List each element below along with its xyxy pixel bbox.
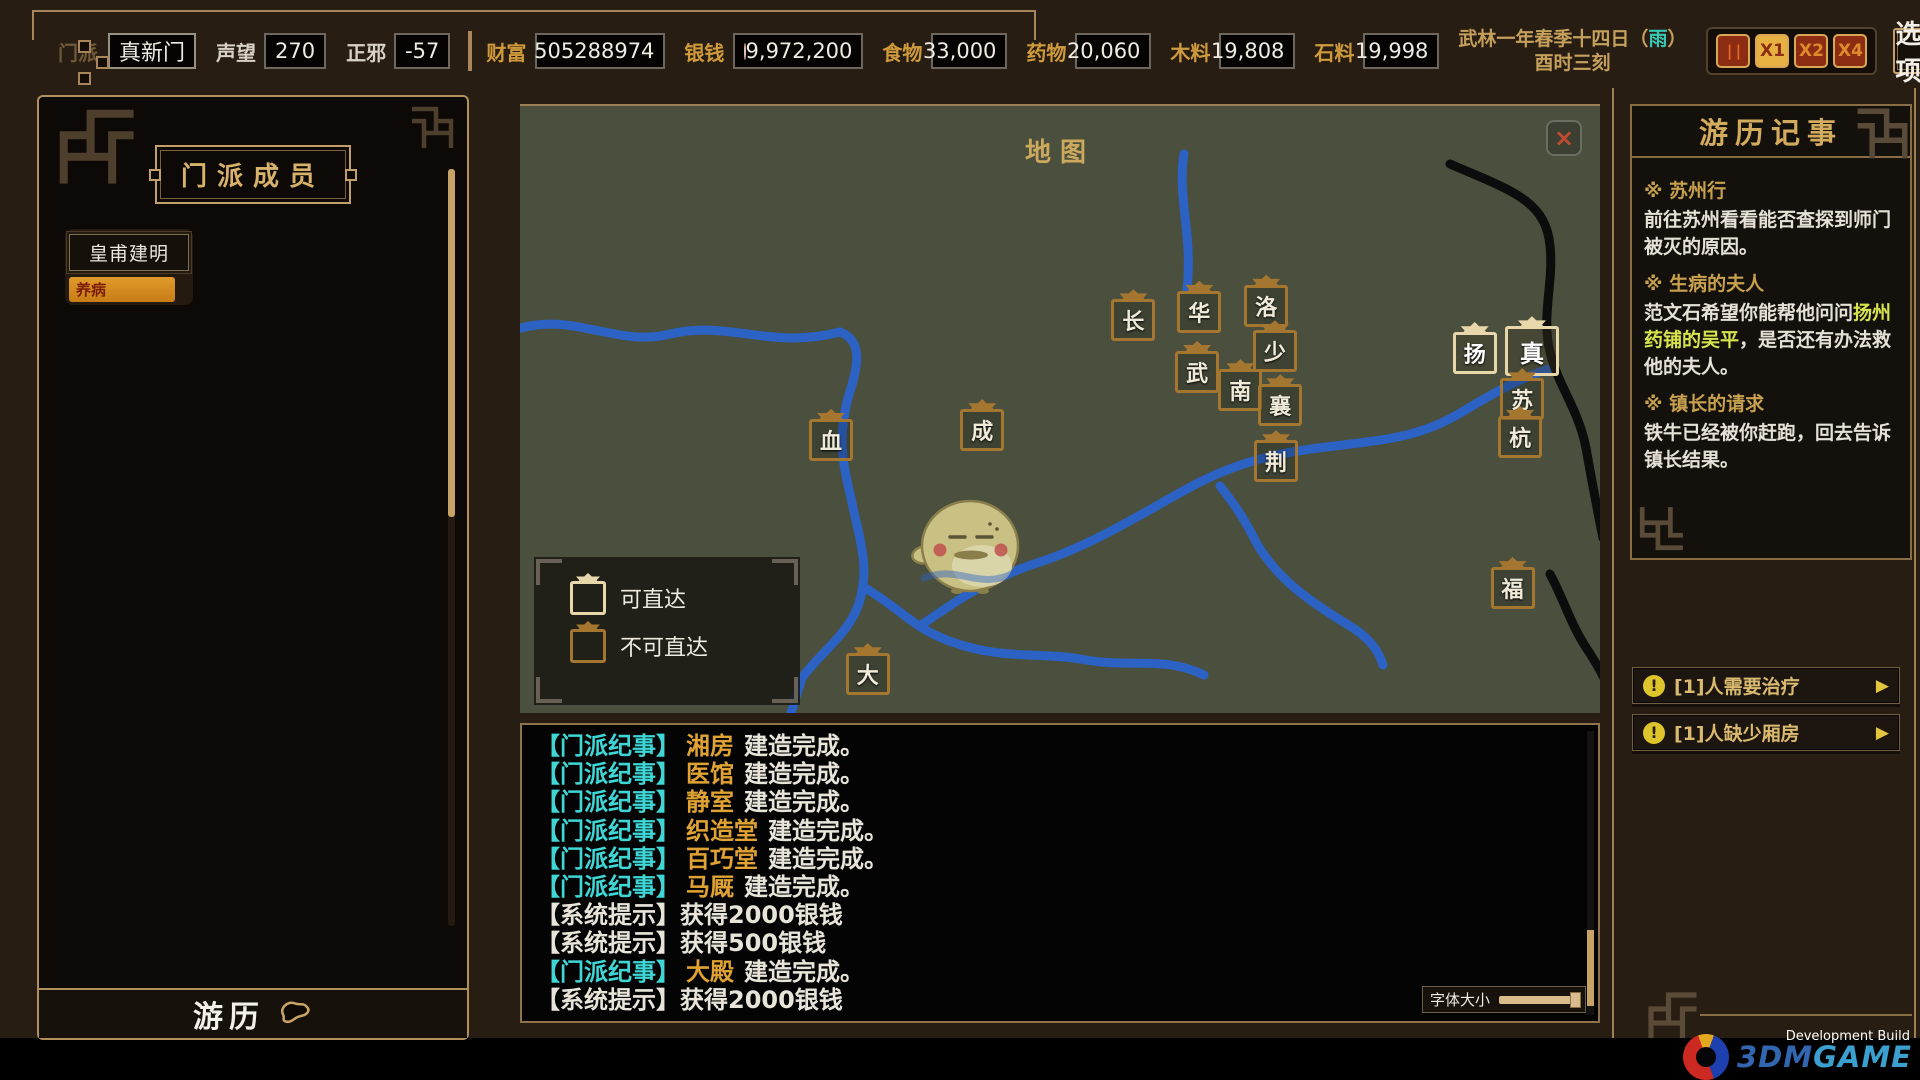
resource-value: 505288974 bbox=[534, 39, 654, 63]
journal-body: ※ 苏州行 前往苏州看看能否查探到师门被灭的原因。 ※ 生病的夫人 范文石希望你… bbox=[1632, 158, 1910, 492]
legend-corner-ornament bbox=[536, 559, 562, 585]
weather-indicator: 雨 bbox=[1648, 28, 1667, 50]
log-tag: 【门派纪事】 bbox=[536, 958, 680, 986]
quest-entry: ※ 镇长的请求 铁牛已经被你赶跑，回去告诉镇长结果。 bbox=[1644, 389, 1898, 474]
speed-button[interactable]: X1 bbox=[1755, 34, 1789, 68]
log-text: 建造完成。 bbox=[744, 788, 864, 816]
resource-label: 银钱 bbox=[684, 37, 724, 66]
city-marker-label: 襄 bbox=[1269, 389, 1291, 421]
speed-button[interactable]: X2 bbox=[1794, 34, 1828, 68]
city-marker[interactable]: 成 bbox=[960, 409, 1004, 451]
log-tag: 【门派纪事】 bbox=[536, 845, 680, 873]
legend-marker-icon bbox=[570, 629, 606, 663]
log-tag: 【系统提示】 bbox=[536, 986, 680, 1014]
city-marker[interactable]: 杭 bbox=[1498, 416, 1542, 458]
bottom-black-bar bbox=[0, 1038, 1920, 1080]
meander-ornament bbox=[1636, 504, 1686, 554]
city-marker-label: 成 bbox=[971, 414, 993, 446]
resource-value: 19,998 bbox=[1355, 39, 1428, 63]
quest-description: 范文石希望你能帮他问问扬州药铺的吴平，是否还有办法救他的夫人。 bbox=[1644, 300, 1898, 381]
log-line: 【门派纪事】医馆建造完成。 bbox=[536, 760, 1584, 788]
log-text: 建造完成。 bbox=[768, 817, 888, 845]
log-line: 【门派纪事】大殿建造完成。 bbox=[536, 958, 1584, 986]
log-subject: 百巧堂 bbox=[686, 845, 758, 873]
alert-icon: ! bbox=[1643, 722, 1665, 744]
log-tag: 【系统提示】 bbox=[536, 901, 680, 929]
city-marker-label: 血 bbox=[820, 424, 842, 456]
city-marker-label: 洛 bbox=[1255, 290, 1277, 322]
city-marker[interactable]: 武 bbox=[1175, 351, 1219, 393]
meander-ornament bbox=[409, 103, 457, 151]
log-tag: 【门派纪事】 bbox=[536, 788, 680, 816]
log-text: 建造完成。 bbox=[744, 760, 864, 788]
travel-button[interactable]: 游历 bbox=[39, 988, 467, 1038]
log-tag: 【门派纪事】 bbox=[536, 873, 680, 901]
resource-value-box: 19,998 bbox=[1363, 33, 1439, 69]
legend-label: 可直达 bbox=[620, 582, 686, 614]
date-line1: 武林一年春季十四日（雨） bbox=[1458, 27, 1686, 51]
resource-item: 木料 19,808 bbox=[1170, 33, 1295, 69]
log-subject: 马厩 bbox=[686, 873, 734, 901]
resource-label: 药物 bbox=[1026, 37, 1066, 66]
city-marker[interactable]: 长 bbox=[1111, 299, 1155, 341]
resource-label: 财富 bbox=[486, 37, 526, 66]
quest-entry: ※ 生病的夫人 范文石希望你能帮他问问扬州药铺的吴平，是否还有办法救他的夫人。 bbox=[1644, 269, 1898, 381]
log-line: 【门派纪事】百巧堂建造完成。 bbox=[536, 845, 1584, 873]
legend-corner-ornament bbox=[772, 559, 798, 585]
3dmgame-logo: 3DMGAME bbox=[1683, 1034, 1912, 1080]
legend-corner-ornament bbox=[772, 677, 798, 703]
player-avatar bbox=[912, 501, 1018, 594]
log-text: 获得500银钱 bbox=[680, 929, 826, 957]
legend-label: 不可直达 bbox=[620, 630, 708, 662]
city-marker[interactable]: 扬 bbox=[1453, 332, 1497, 374]
options-button[interactable]: 选项 bbox=[1893, 28, 1920, 74]
frame-edge-line bbox=[1914, 88, 1916, 1040]
log-subject: 大殿 bbox=[686, 958, 734, 986]
city-marker[interactable]: 血 bbox=[809, 419, 853, 461]
logo-swirl-icon bbox=[1683, 1034, 1729, 1080]
log-line: 【门派纪事】湘房建造完成。 bbox=[536, 732, 1584, 760]
resource-value: 33,000 bbox=[923, 39, 996, 63]
map-legend: 可直达 不可直达 bbox=[534, 557, 800, 705]
legend-corner-ornament bbox=[536, 677, 562, 703]
notification-bar[interactable]: ! [1]人缺少厢房 ▶ bbox=[1632, 714, 1900, 751]
notification-text: [1]人需要治疗 bbox=[1674, 672, 1867, 699]
world-map-panel: 地图 × 长 华 洛 少 武 bbox=[520, 104, 1600, 713]
font-size-slider[interactable] bbox=[1499, 996, 1578, 1004]
resource-value: 20,060 bbox=[1067, 39, 1140, 63]
quest-title: ※ 苏州行 bbox=[1644, 176, 1898, 203]
city-marker[interactable]: 南 bbox=[1218, 369, 1262, 411]
city-marker-label: 长 bbox=[1122, 304, 1144, 336]
stat-label: 声望 bbox=[216, 37, 256, 66]
meander-ornament bbox=[1854, 104, 1912, 162]
frame-ornament-line bbox=[1700, 1014, 1912, 1016]
chevron-right-icon: ▶ bbox=[1876, 676, 1889, 696]
resource-value: 19,808 bbox=[1211, 39, 1284, 63]
city-marker[interactable]: 襄 bbox=[1258, 384, 1302, 426]
city-marker[interactable]: 华 bbox=[1177, 291, 1221, 333]
member-status-badge: 养病 bbox=[69, 277, 175, 302]
log-text: 建造完成。 bbox=[744, 873, 864, 901]
legend-row: 可直达 bbox=[570, 581, 800, 615]
log-line: 【系统提示】获得2000银钱 bbox=[536, 901, 1584, 929]
font-size-label: 字体大小 bbox=[1430, 989, 1490, 1010]
coin-icon bbox=[744, 43, 746, 60]
legend-row: 不可直达 bbox=[570, 629, 800, 663]
log-subject: 医馆 bbox=[686, 760, 734, 788]
log-subject: 静室 bbox=[686, 788, 734, 816]
log-text: 建造完成。 bbox=[744, 732, 864, 760]
footprint-icon bbox=[277, 998, 313, 1030]
topbar-frame-ornament bbox=[32, 10, 1036, 40]
city-marker[interactable]: 少 bbox=[1253, 330, 1297, 372]
log-scrollbar[interactable] bbox=[1587, 731, 1594, 1015]
meander-ornament bbox=[53, 103, 139, 189]
date-line2: 酉时三刻 bbox=[1458, 51, 1686, 75]
quest-title: ※ 镇长的请求 bbox=[1644, 389, 1898, 416]
topbar-ornament-block bbox=[96, 56, 109, 69]
resource-value: 9,972,200 bbox=[746, 39, 853, 63]
quest-entry: ※ 苏州行 前往苏州看看能否查探到师门被灭的原因。 bbox=[1644, 176, 1898, 261]
resource-label: 食物 bbox=[882, 37, 922, 66]
close-icon[interactable]: × bbox=[1546, 120, 1582, 156]
log-line: 【系统提示】获得500银钱 bbox=[536, 929, 1584, 957]
city-marker-label: 荆 bbox=[1265, 445, 1287, 477]
notification-bar[interactable]: ! [1]人需要治疗 ▶ bbox=[1632, 667, 1900, 704]
scrollbar-thumb[interactable] bbox=[1587, 930, 1594, 1007]
topbar-ornament-block bbox=[78, 72, 91, 85]
log-text: 建造完成。 bbox=[768, 845, 888, 873]
font-size-control: 字体大小 bbox=[1422, 986, 1586, 1013]
travel-label: 游历 bbox=[193, 992, 265, 1036]
quest-description: 前往苏州看看能否查探到师门被灭的原因。 bbox=[1644, 207, 1898, 261]
alert-icon: ! bbox=[1643, 675, 1665, 697]
stat-label: 正邪 bbox=[346, 37, 386, 66]
resource-item: 石料 19,998 bbox=[1314, 33, 1439, 69]
log-line: 【门派纪事】马厩建造完成。 bbox=[536, 873, 1584, 901]
logo-text: 3DMGAME bbox=[1737, 1040, 1912, 1074]
members-scrollbar[interactable] bbox=[448, 169, 455, 926]
panel-title: 门派成员 bbox=[155, 145, 351, 204]
log-line: 【门派纪事】静室建造完成。 bbox=[536, 788, 1584, 816]
chevron-right-icon: ▶ bbox=[1876, 723, 1889, 743]
log-text: 建造完成。 bbox=[744, 958, 864, 986]
travel-journal-panel: 游历记事 ※ 苏州行 前往苏州看看能否查探到师门被灭的原因。 ※ 生病的夫人 范… bbox=[1630, 104, 1912, 560]
slider-handle[interactable] bbox=[1570, 992, 1581, 1008]
city-marker-label: 真 bbox=[1520, 334, 1544, 369]
quest-title: ※ 生病的夫人 bbox=[1644, 269, 1898, 296]
sect-members-panel: 门派成员 皇甫建明 养病 游历 bbox=[37, 95, 469, 1040]
city-marker[interactable]: 福 bbox=[1491, 567, 1535, 609]
quest-description: 铁牛已经被你赶跑，回去告诉镇长结果。 bbox=[1644, 420, 1898, 474]
speed-button[interactable]: | | bbox=[1716, 34, 1750, 68]
log-tag: 【门派纪事】 bbox=[536, 817, 680, 845]
frame-divider-line bbox=[1612, 88, 1614, 1040]
city-marker-label: 大 bbox=[857, 658, 879, 690]
log-text: 获得2000银钱 bbox=[680, 901, 843, 929]
resource-value-box: 20,060 bbox=[1075, 33, 1151, 69]
game-screen: 门派 真新门 声望 270 正邪 -57 财富 505288974 银钱 bbox=[0, 0, 1920, 1080]
notification-text: [1]人缺少厢房 bbox=[1674, 719, 1867, 746]
city-marker-label: 武 bbox=[1186, 356, 1208, 388]
speed-button[interactable]: X4 bbox=[1833, 34, 1867, 68]
city-marker[interactable]: 大 bbox=[846, 653, 890, 695]
top-bar: 门派 真新门 声望 270 正邪 -57 财富 505288974 银钱 bbox=[0, 0, 1920, 88]
log-tag: 【门派纪事】 bbox=[536, 732, 680, 760]
resource-label: 石料 bbox=[1314, 37, 1354, 66]
log-subject: 织造堂 bbox=[686, 817, 758, 845]
city-marker-label: 扬 bbox=[1464, 337, 1486, 369]
city-marker[interactable]: 荆 bbox=[1254, 440, 1298, 482]
speed-controls: | | X1 X2 X4 bbox=[1706, 27, 1877, 75]
scrollbar-thumb[interactable] bbox=[448, 169, 455, 517]
member-card[interactable]: 皇甫建明 养病 bbox=[65, 229, 193, 305]
city-marker-label: 福 bbox=[1502, 572, 1524, 604]
city-marker-label: 杭 bbox=[1509, 421, 1531, 453]
log-subject: 湘房 bbox=[686, 732, 734, 760]
log-line: 【门派纪事】织造堂建造完成。 bbox=[536, 817, 1584, 845]
game-date: 武林一年春季十四日（雨） 酉时三刻 bbox=[1458, 27, 1686, 75]
city-marker-label: 少 bbox=[1264, 335, 1286, 367]
event-log-panel: 【门派纪事】湘房建造完成。 【门派纪事】医馆建造完成。 【门派纪事】静室建造完成… bbox=[520, 723, 1600, 1023]
resource-label: 木料 bbox=[1170, 37, 1210, 66]
city-marker-label: 华 bbox=[1188, 296, 1210, 328]
city-marker[interactable]: 真 bbox=[1505, 326, 1559, 376]
resource-item: 药物 20,060 bbox=[1026, 33, 1151, 69]
city-marker-label: 南 bbox=[1229, 374, 1251, 406]
legend-marker-icon bbox=[570, 581, 606, 615]
member-name: 皇甫建明 bbox=[69, 234, 189, 271]
resource-value-box: 19,808 bbox=[1219, 33, 1295, 69]
log-tag: 【门派纪事】 bbox=[536, 760, 680, 788]
log-tag: 【系统提示】 bbox=[536, 929, 680, 957]
city-marker[interactable]: 洛 bbox=[1244, 285, 1288, 327]
topbar-ornament-block bbox=[78, 40, 91, 53]
map-title: 地图 bbox=[1025, 132, 1095, 169]
log-text: 获得2000银钱 bbox=[680, 986, 843, 1014]
